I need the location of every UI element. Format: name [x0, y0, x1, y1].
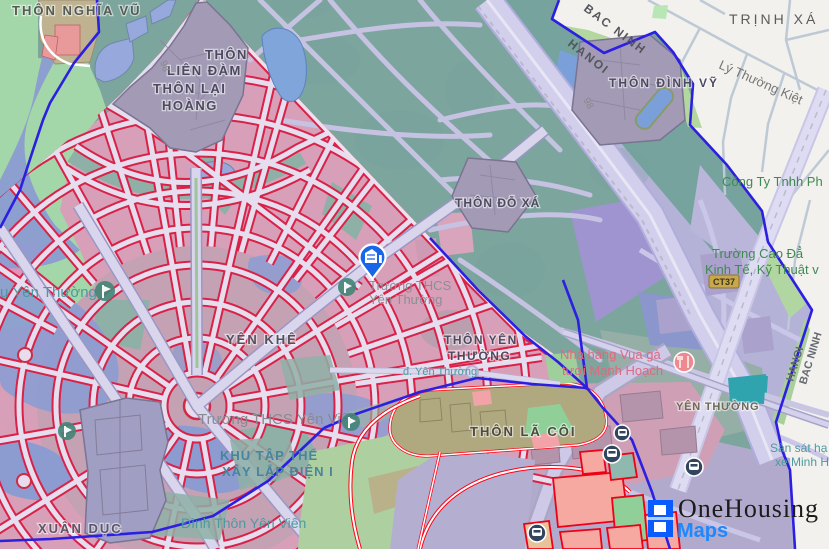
svg-text:xe Minh H: xe Minh H	[775, 455, 829, 469]
svg-text:Đình Thôn Yên Viên: Đình Thôn Yên Viên	[181, 515, 306, 531]
svg-text:OneHousing: OneHousing	[678, 494, 818, 523]
svg-text:THƯỜNG: THƯỜNG	[448, 348, 511, 363]
svg-text:Nhà hàng Vua gà: Nhà hàng Vua gà	[560, 347, 661, 362]
svg-text:Sản sát hạ: Sản sát hạ	[770, 441, 828, 455]
svg-text:Trường Cao Đẳ: Trường Cao Đẳ	[712, 246, 804, 261]
svg-text:Trường THCS Yên Viên: Trường THCS Yên Viên	[198, 411, 357, 428]
svg-text:HOÀNG: HOÀNG	[162, 98, 218, 113]
svg-text:TRỊNH XÁ: TRỊNH XÁ	[729, 11, 818, 27]
svg-text:THÔN NGHĨA VŨ: THÔN NGHĨA VŨ	[12, 3, 142, 18]
svg-text:THÔN LẠI: THÔN LẠI	[153, 81, 226, 96]
svg-text:KHU TẬP THỂ: KHU TẬP THỂ	[220, 448, 318, 463]
svg-text:Công Ty Tnhh Ph: Công Ty Tnhh Ph	[722, 174, 823, 189]
svg-text:THÔN: THÔN	[205, 47, 248, 62]
svg-text:Yên Thường: Yên Thường	[369, 292, 442, 307]
svg-text:Trường THCS: Trường THCS	[369, 278, 452, 293]
svg-text:YÊN THƯỜNG: YÊN THƯỜNG	[676, 400, 759, 413]
svg-text:đ. Yên Thường: đ. Yên Thường	[403, 366, 477, 378]
svg-text:THÔN LÃ CÔI: THÔN LÃ CÔI	[470, 424, 577, 439]
svg-text:YÊN KHÊ: YÊN KHÊ	[226, 332, 298, 347]
svg-text:LIÊN ĐÀM: LIÊN ĐÀM	[167, 63, 242, 78]
svg-text:THÔN YÊN: THÔN YÊN	[444, 332, 518, 347]
svg-text:THÔN ĐÌNH VỸ: THÔN ĐÌNH VỸ	[609, 75, 719, 90]
svg-text:CT37: CT37	[713, 277, 735, 287]
svg-text:THÔN ĐỖ XÁ: THÔN ĐỖ XÁ	[455, 195, 540, 210]
svg-text:XUÂN DỤC: XUÂN DỤC	[38, 521, 123, 536]
svg-text:tươi Mạnh Hoạch: tươi Mạnh Hoạch	[562, 363, 663, 378]
svg-text:u Yên Thường: u Yên Thường	[0, 284, 97, 301]
svg-text:Maps: Maps	[677, 520, 728, 542]
svg-text:XÂY LẮP ĐIỆN I: XÂY LẮP ĐIỆN I	[222, 464, 334, 479]
